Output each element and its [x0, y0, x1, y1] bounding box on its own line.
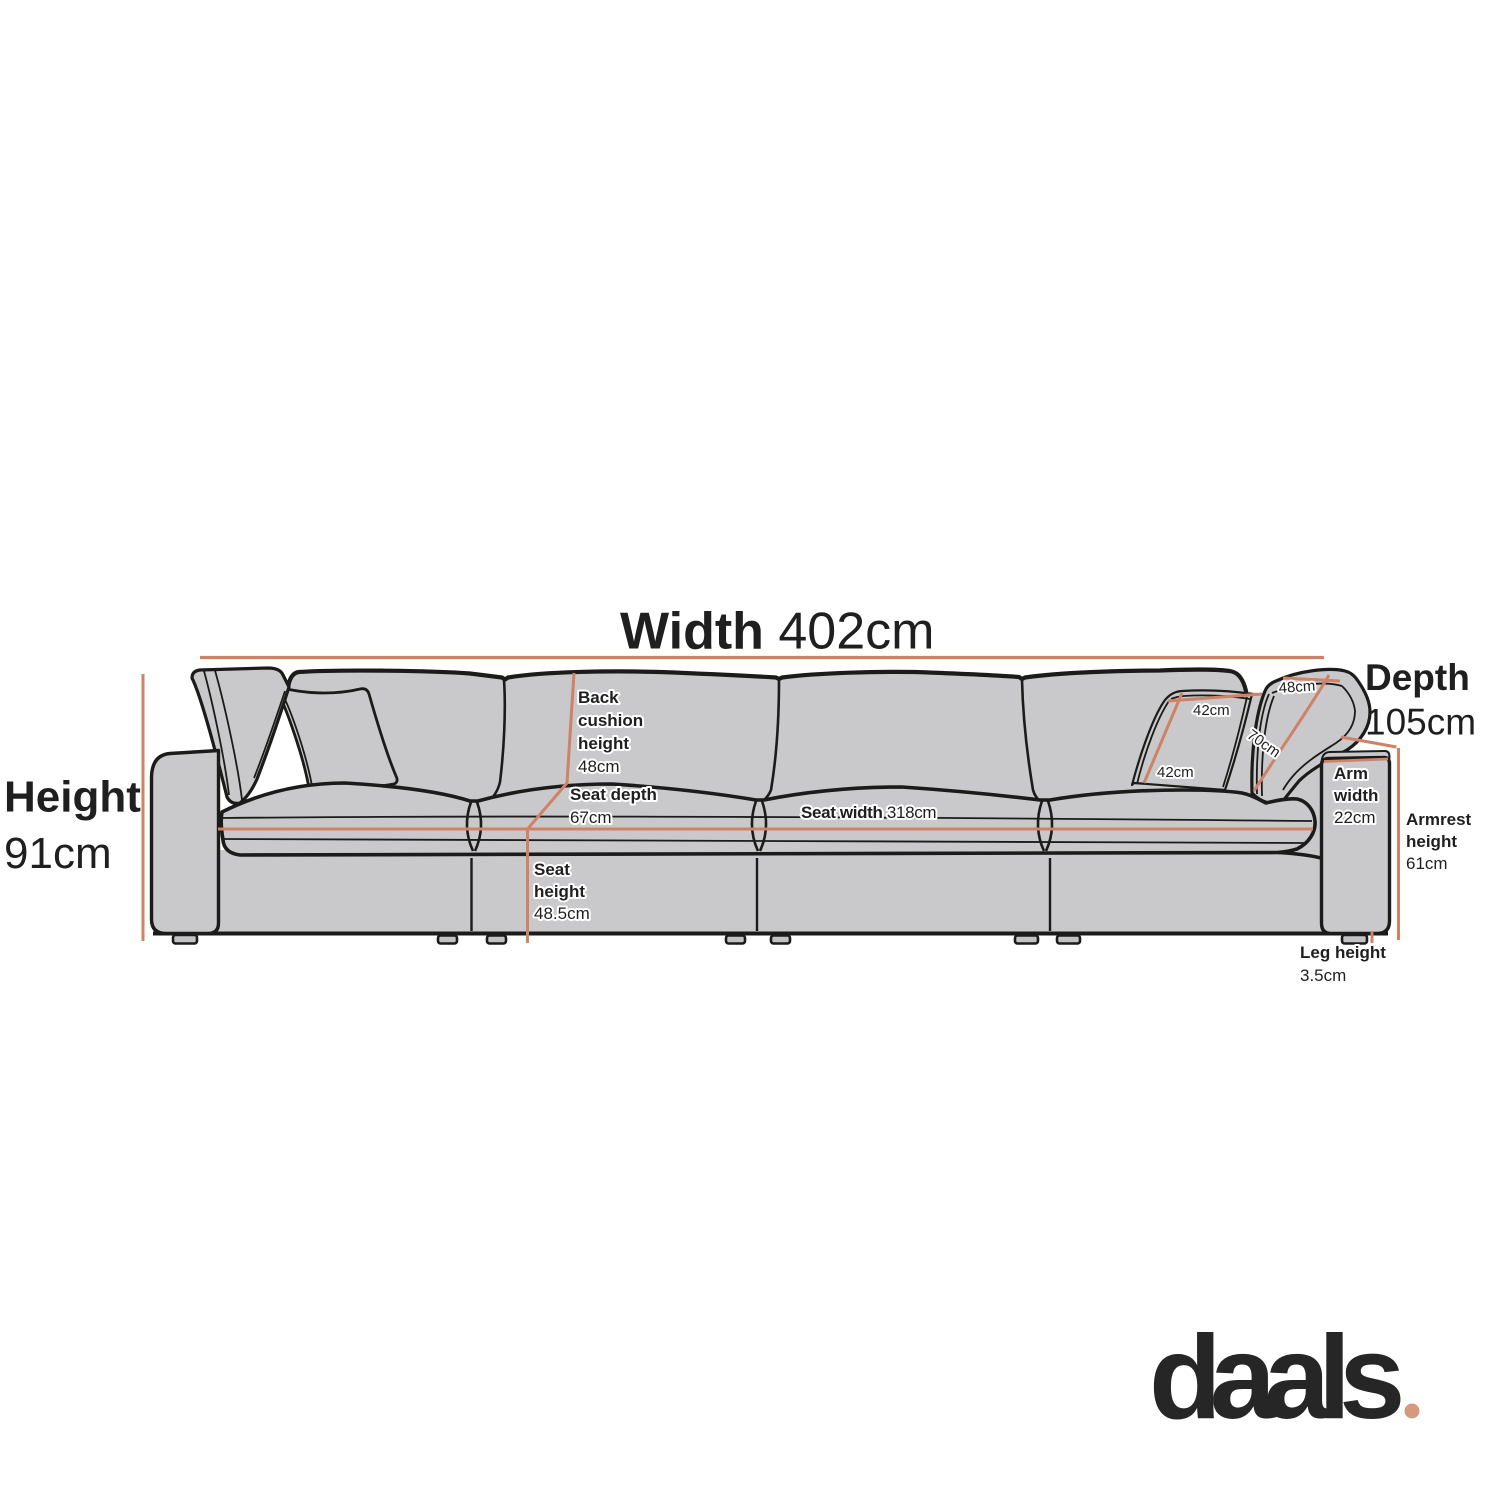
svg-text:Width 402cm: Width 402cm: [620, 603, 934, 661]
svg-text:width: width: [1333, 786, 1378, 805]
svg-text:61cm: 61cm: [1406, 854, 1448, 873]
svg-text:daals: daals: [1149, 1311, 1401, 1444]
svg-text:105cm: 105cm: [1365, 702, 1476, 743]
svg-text:Seat width 318cm: Seat width 318cm: [801, 803, 936, 822]
svg-text:Back: Back: [578, 688, 619, 707]
svg-text:3.5cm: 3.5cm: [1300, 966, 1346, 985]
svg-text:height: height: [534, 882, 585, 901]
svg-text:Depth: Depth: [1365, 657, 1470, 698]
svg-text:48cm: 48cm: [1278, 677, 1316, 697]
svg-text:Seat depth: Seat depth: [570, 785, 657, 804]
svg-text:height: height: [578, 734, 629, 753]
svg-text:Height: Height: [4, 773, 141, 822]
svg-text:91cm: 91cm: [4, 829, 112, 878]
svg-text:height: height: [1406, 832, 1457, 851]
svg-text:67cm: 67cm: [570, 808, 612, 827]
svg-text:cushion: cushion: [578, 711, 643, 730]
svg-text:22cm: 22cm: [1334, 808, 1376, 827]
svg-text:Leg height: Leg height: [1300, 943, 1386, 962]
svg-text:48cm: 48cm: [578, 757, 620, 776]
svg-text:Armrest: Armrest: [1406, 810, 1472, 829]
svg-text:42cm: 42cm: [1193, 702, 1230, 719]
svg-text:Arm: Arm: [1334, 764, 1368, 783]
svg-text:48.5cm: 48.5cm: [534, 904, 590, 923]
svg-text:Seat: Seat: [534, 860, 570, 879]
svg-text:42cm: 42cm: [1157, 764, 1194, 781]
